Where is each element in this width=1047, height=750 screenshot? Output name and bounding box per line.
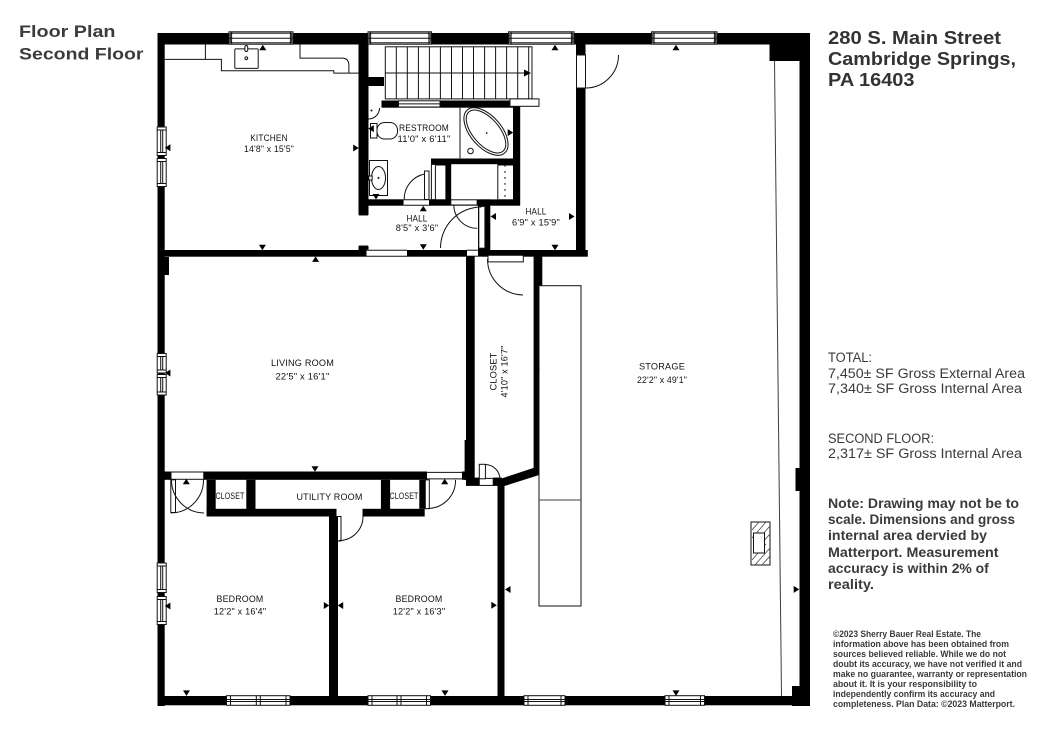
svg-text:6'9" x 15'9": 6'9" x 15'9" (512, 218, 560, 229)
svg-text:doubt its accuracy, we have no: doubt its accuracy, we have not verified… (833, 659, 1022, 669)
svg-text:12'2" x 16'4": 12'2" x 16'4" (214, 606, 267, 617)
svg-text:KITCHEN: KITCHEN (250, 133, 288, 144)
svg-text:scale. Dimensions and gross: scale. Dimensions and gross (828, 512, 1015, 528)
svg-text:reality.: reality. (828, 577, 874, 593)
svg-text:14'8" x 15'5": 14'8" x 15'5" (244, 144, 294, 155)
svg-text:CLOSET: CLOSET (216, 491, 245, 502)
svg-text:BEDROOM: BEDROOM (396, 594, 443, 605)
svg-text:Floor Plan: Floor Plan (19, 22, 116, 41)
svg-text:280 S. Main Street: 280 S. Main Street (828, 28, 1001, 48)
svg-text:make no guarantee, warranty or: make no guarantee, warranty or represent… (833, 669, 1027, 679)
svg-text:UTILITY ROOM: UTILITY ROOM (297, 492, 363, 503)
svg-text:2,317± SF Gross Internal Area: 2,317± SF Gross Internal Area (828, 446, 1023, 461)
svg-text:©2023 Sherry Bauer Real Estate: ©2023 Sherry Bauer Real Estate. The (833, 629, 981, 639)
svg-text:8'5" x 3'6": 8'5" x 3'6" (396, 223, 439, 234)
svg-text:TOTAL:: TOTAL: (828, 350, 872, 365)
svg-text:STORAGE: STORAGE (639, 362, 685, 373)
svg-text:PA 16403: PA 16403 (828, 70, 915, 90)
svg-text:BEDROOM: BEDROOM (217, 594, 264, 605)
svg-text:Second Floor: Second Floor (19, 45, 144, 64)
svg-text:information above has been obt: information above has been obtained from (833, 639, 1009, 649)
svg-text:CLOSET: CLOSET (390, 491, 419, 502)
svg-text:about it. It is your responsib: about it. It is your responsibility to (833, 679, 977, 689)
svg-text:4'10" x 16'7": 4'10" x 16'7" (500, 346, 511, 398)
svg-text:Matterport. Measurement: Matterport. Measurement (828, 545, 999, 561)
svg-text:7,340± SF Gross Internal Area: 7,340± SF Gross Internal Area (828, 381, 1023, 396)
svg-text:12'2" x 16'3": 12'2" x 16'3" (393, 606, 446, 617)
svg-text:HALL: HALL (526, 207, 547, 218)
svg-text:22'5" x 16'1": 22'5" x 16'1" (276, 372, 330, 383)
svg-text:Cambridge Springs,: Cambridge Springs, (828, 49, 1016, 69)
svg-text:11'0" x 6'11": 11'0" x 6'11" (398, 134, 451, 145)
svg-text:LIVING ROOM: LIVING ROOM (271, 358, 334, 369)
svg-text:completeness. Plan Data: ©2023: completeness. Plan Data: ©2023 Matterpor… (833, 699, 1015, 709)
svg-text:22'2" x 49'1": 22'2" x 49'1" (637, 375, 687, 386)
svg-text:CLOSET: CLOSET (489, 353, 500, 391)
svg-text:Note: Drawing may not be to: Note: Drawing may not be to (828, 496, 1019, 512)
svg-text:SECOND FLOOR:: SECOND FLOOR: (828, 431, 934, 446)
svg-text:RESTROOM: RESTROOM (399, 123, 449, 134)
svg-text:accuracy is within 2% of: accuracy is within 2% of (828, 561, 989, 577)
svg-text:7,450± SF Gross External Area: 7,450± SF Gross External Area (828, 366, 1026, 381)
svg-text:sources believed reliable. Whi: sources believed reliable. While we do n… (833, 649, 1006, 659)
svg-text:independently confirm its accu: independently confirm its accuracy and (833, 689, 995, 699)
svg-text:internal area dervied by: internal area dervied by (828, 528, 987, 544)
